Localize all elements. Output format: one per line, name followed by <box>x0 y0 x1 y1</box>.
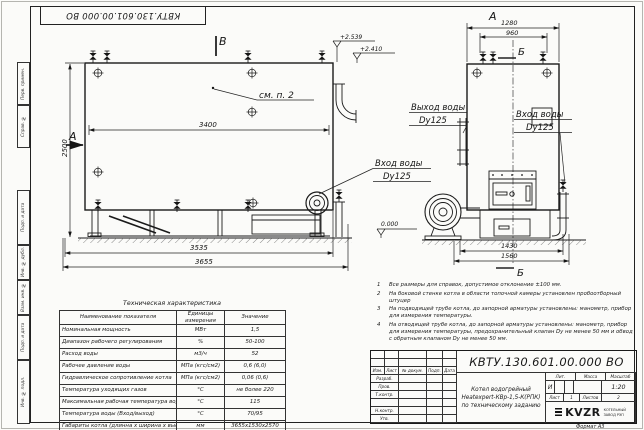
note-item: 2 На боковой стенке котла в области топо… <box>377 291 637 305</box>
note-item: 1 Все размеры для справок, допустимое от… <box>377 282 637 289</box>
spec-header-name: Наименование показателя <box>60 311 177 325</box>
dim-960: 960 <box>506 29 518 37</box>
boiler-front-view <box>422 40 586 264</box>
table-row: Температура воды (Вход/выход)°С70/95 <box>60 409 286 421</box>
table-row: Номинальная мощностьМВт1,5 <box>60 325 286 337</box>
front-view-dimensions <box>409 23 572 268</box>
revision-header-row: Изм. Лист № докум. Подп. Дата <box>371 367 457 375</box>
table-row: Температура уходящих газов°Сне более 220 <box>60 385 286 397</box>
margin-stamp-inv-podl: Инв. № подл. <box>17 360 30 424</box>
spec-header-units: Единицы измерения <box>177 311 225 325</box>
section-mark-v: В <box>219 35 227 48</box>
section-mark-a-left: А <box>68 130 77 143</box>
sheet-row: Лист 1 Листов 2 <box>546 394 636 402</box>
spec-table-block: Техническая характеристика Наименование … <box>59 300 285 430</box>
dim-3655: 3655 <box>195 258 213 266</box>
dim-1560: 1560 <box>501 252 518 260</box>
section-mark-b-bottom: Б <box>517 268 524 278</box>
margin-stamp-podp-data-1: Подп. и дата <box>17 190 30 245</box>
dim-3535: 3535 <box>190 244 208 252</box>
description-line: Heatexpert-КВр-1,5-К(РПК) <box>461 394 540 402</box>
company-logo: KVZR КОТЕЛЬНЫЙ ЗАВОД РЭП <box>546 402 636 423</box>
scale-value: 1:20 <box>602 381 636 394</box>
outlet-label-1: Выход воды <box>411 103 465 113</box>
drawing-page: Перв. примен. Справ. № Подп. и дата Инв.… <box>0 0 644 430</box>
mass-value <box>574 381 602 394</box>
note-text: Все размеры для справок, допустимое откл… <box>389 282 562 289</box>
note-number: 3 <box>377 306 384 320</box>
dim-1430: 1430 <box>501 242 518 250</box>
note-number: 2 <box>377 291 384 305</box>
lit-value: И <box>546 381 555 394</box>
table-row: Габариты котла (длинна х ширина х высота… <box>60 421 286 430</box>
table-row: Максимальная рабочая температура воды°С1… <box>60 397 286 409</box>
doc-number: КВТУ.130.601.00.000 ВО <box>457 351 636 373</box>
elevation-zero: 0.000 <box>381 221 398 228</box>
margin-stamp-sprav: Справ. № <box>17 105 30 148</box>
spec-table: Наименование показателя Единицы измерени… <box>59 310 286 430</box>
margin-stamp-inv-dubl: Инв. № дубл. <box>17 245 30 280</box>
boiler-drawing: 2500 3400 3535 3655 В А см. п. 2 +2.539 … <box>30 6 638 278</box>
inlet-label-side-2: Dy125 <box>383 172 411 182</box>
outlet-label-2: Dy125 <box>419 116 447 126</box>
note-item: 4 На отводящей трубе котла, до запорной … <box>377 322 637 343</box>
table-row: Рабочее давление водыМПа (кгс/см2)0,6 (6… <box>60 361 286 373</box>
table-row: Расход водым3/ч52 <box>60 349 286 361</box>
format-label: Формат А3 <box>576 424 605 430</box>
kvzr-logo-text: KVZR <box>565 406 600 419</box>
title-block-revision-grid: Изм. Лист № докум. Подп. Дата Разраб. Пр… <box>371 351 457 423</box>
elevation-2410: +2.410 <box>360 46 382 53</box>
drawing-description: Котел водогрейный Heatexpert-КВр-1,5-К(Р… <box>457 373 546 423</box>
section-mark-b-top: Б <box>518 47 525 58</box>
note-text: На подводящей трубе котла, до запорной а… <box>389 306 637 320</box>
table-row: Гидравлическое сопротивление котлаМПа (к… <box>60 373 286 385</box>
inlet-label-front-1: Вход воды <box>516 110 564 120</box>
notes-block: 1 Все размеры для справок, допустимое от… <box>377 282 637 344</box>
note-number: 1 <box>377 282 384 289</box>
description-line: Котел водогрейный <box>471 386 531 394</box>
margin-stamp-vzam-inv: Взам. инв. № <box>17 280 30 315</box>
title-block: Изм. Лист № докум. Подп. Дата Разраб. Пр… <box>370 350 637 424</box>
company-name: КОТЕЛЬНЫЙ ЗАВОД РЭП <box>604 408 626 417</box>
margin-stamp-podp-data-2: Подп. и дата <box>17 315 30 360</box>
side-view-fittings <box>89 51 342 212</box>
dim-3400: 3400 <box>199 121 217 129</box>
lit-mass-scale-values: И 1:20 <box>546 381 636 394</box>
inlet-label-side-1: Вход воды <box>375 159 423 169</box>
spec-header-value: Значение <box>225 311 286 325</box>
lit-mass-scale-header: Лит. Масса Масштаб <box>546 373 636 381</box>
spec-table-title: Техническая характеристика <box>59 300 285 307</box>
spec-header-row: Наименование показателя Единицы измерени… <box>60 311 286 325</box>
section-mark-a-right: А <box>488 10 497 23</box>
kvzr-logo-icon <box>555 408 562 417</box>
dim-1280: 1280 <box>501 19 518 27</box>
note-number: 4 <box>377 322 384 343</box>
note-text: На боковой стенке котла в области топочн… <box>389 291 637 305</box>
dim-2500: 2500 <box>61 139 69 157</box>
table-row: Диапазон рабочего регулирования%50-100 <box>60 337 286 349</box>
margin-stamp-perv-primen: Перв. примен. <box>17 62 30 105</box>
elevation-2539: +2.539 <box>340 34 362 41</box>
note-text: На отводящей трубе котла, до запорной ар… <box>389 322 637 343</box>
inlet-label-front-2: Dy125 <box>526 123 554 133</box>
description-line: по техническому заданию <box>461 402 540 410</box>
note-item: 3 На подводящей трубе котла, до запорной… <box>377 306 637 320</box>
see-note-label: см. п. 2 <box>259 91 294 101</box>
